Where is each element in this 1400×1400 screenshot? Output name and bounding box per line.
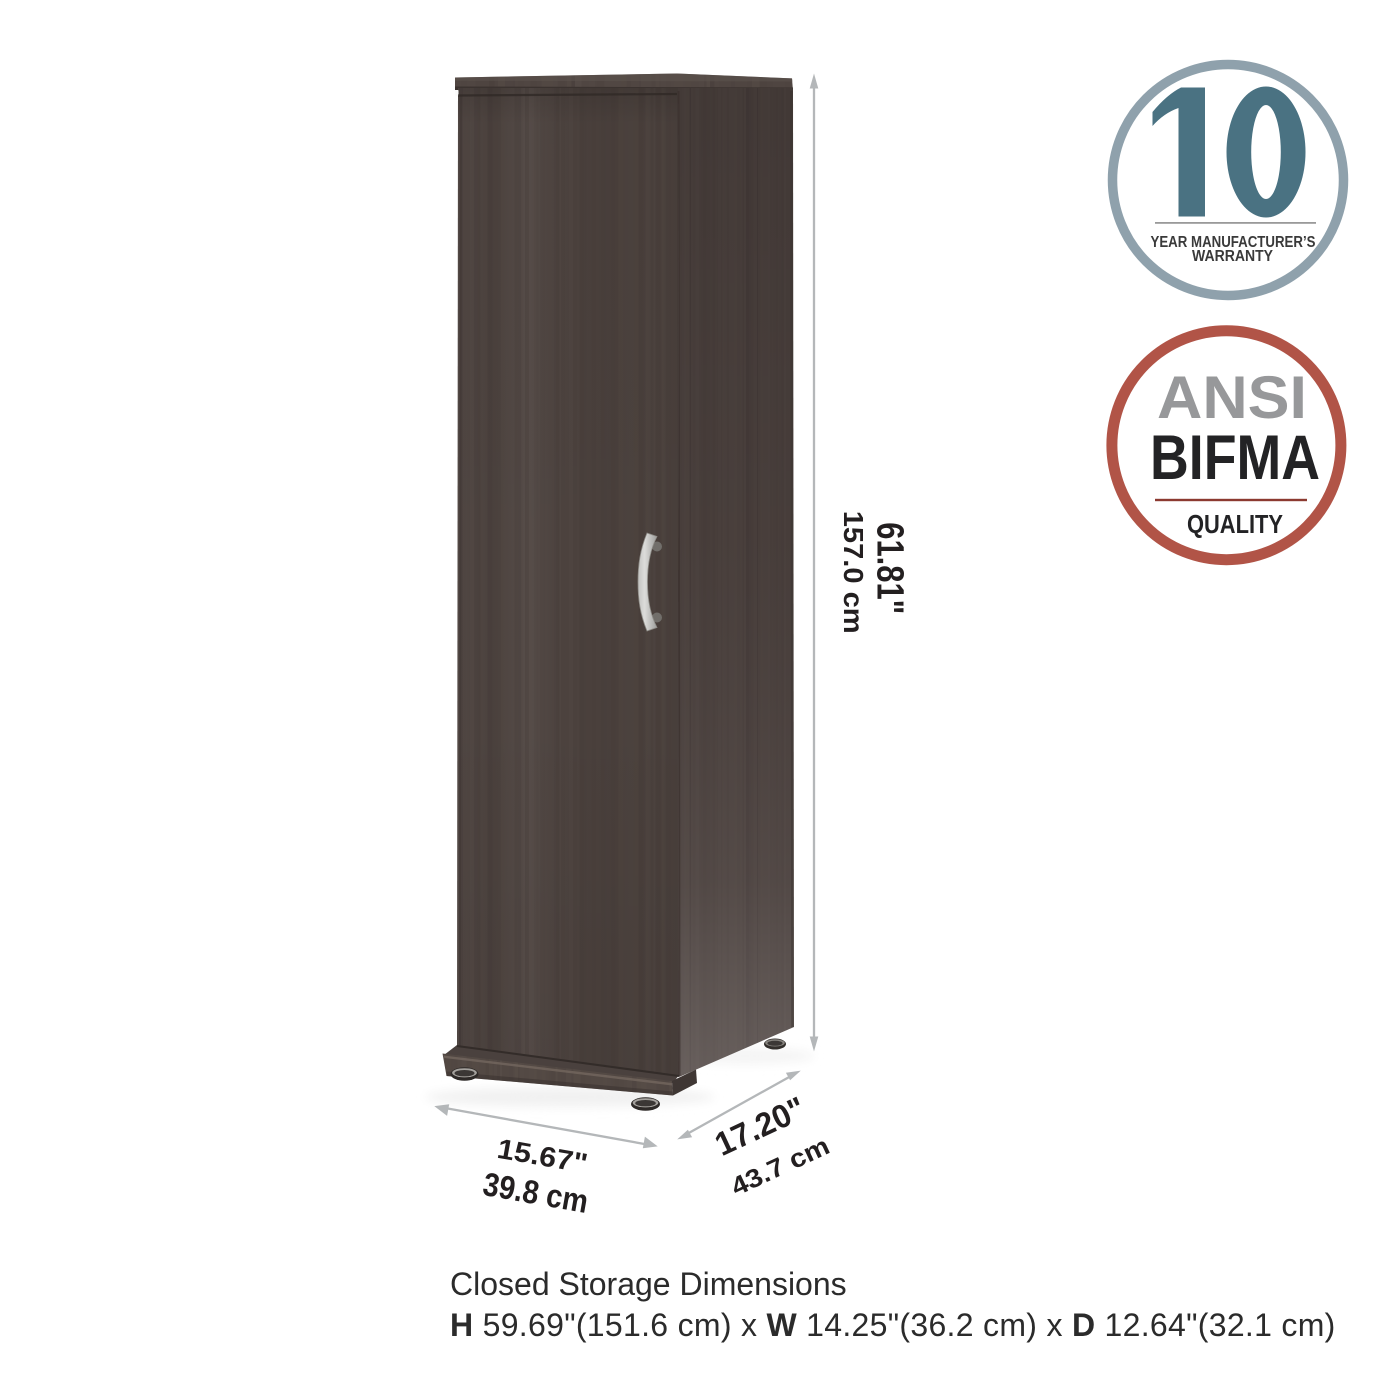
svg-text:ANSI: ANSI xyxy=(1157,364,1307,431)
svg-text:Closed Storage Dimensions: Closed Storage Dimensions xyxy=(450,1266,847,1302)
svg-text:QUALITY: QUALITY xyxy=(1187,509,1283,539)
svg-text:WARRANTY: WARRANTY xyxy=(1192,248,1273,265)
svg-text:61.81": 61.81" xyxy=(869,522,911,614)
svg-text:BIFMA: BIFMA xyxy=(1150,423,1320,493)
svg-text:H 59.69"(151.6 cm) x W 14.25"(: H 59.69"(151.6 cm) x W 14.25"(36.2 cm) x… xyxy=(450,1307,1336,1343)
svg-text:157.0 cm: 157.0 cm xyxy=(838,511,869,634)
